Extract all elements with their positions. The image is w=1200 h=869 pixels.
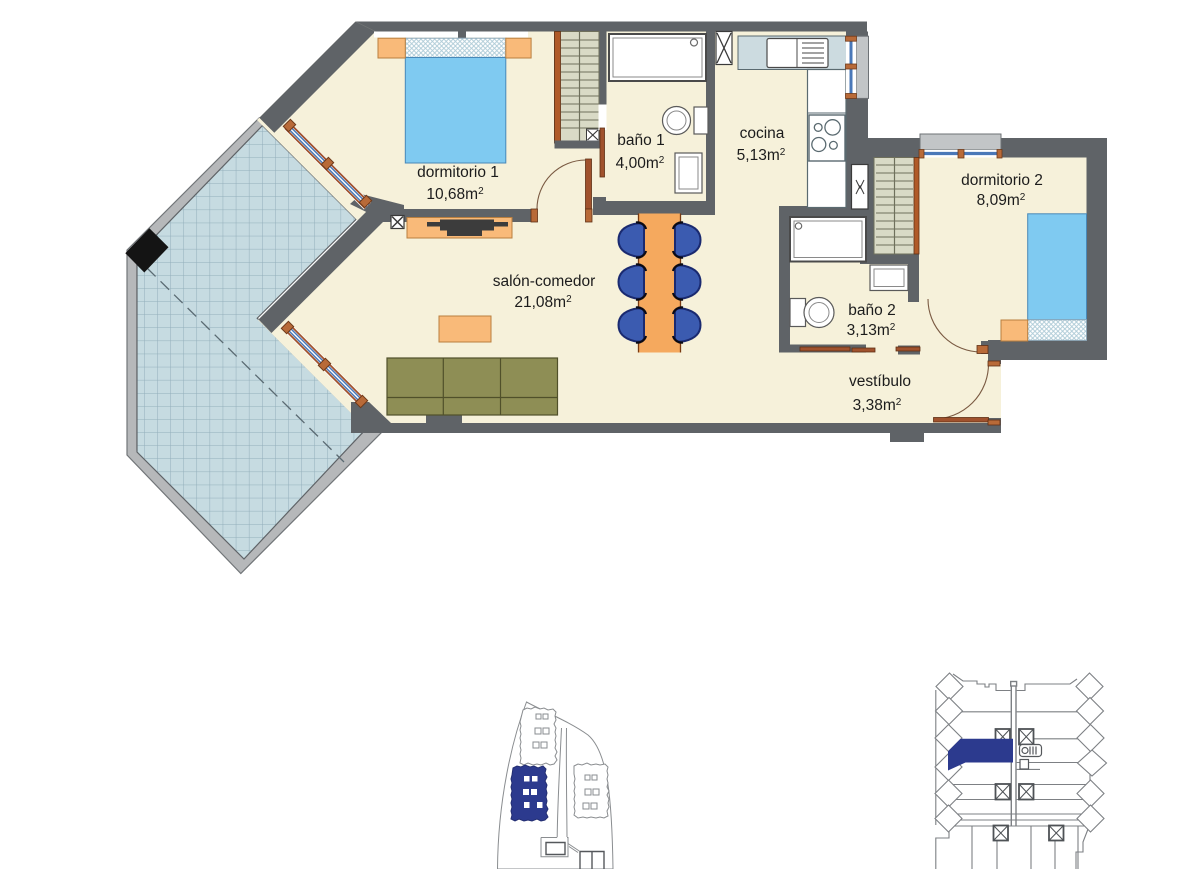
svg-text:5,13m2: 5,13m2 (737, 147, 786, 164)
svg-text:dormitorio 1: dormitorio 1 (417, 164, 499, 181)
svg-text:4,00m2: 4,00m2 (616, 155, 665, 172)
svg-text:cocina: cocina (740, 125, 785, 142)
svg-text:baño 1: baño 1 (617, 132, 664, 149)
svg-text:8,09m2: 8,09m2 (977, 192, 1026, 209)
svg-text:vestíbulo: vestíbulo (849, 373, 911, 390)
svg-text:10,68m2: 10,68m2 (426, 186, 484, 203)
svg-text:21,08m2: 21,08m2 (514, 294, 572, 311)
svg-text:salón-comedor: salón-comedor (493, 273, 596, 290)
svg-text:baño 2: baño 2 (848, 302, 895, 319)
svg-text:dormitorio 2: dormitorio 2 (961, 172, 1043, 189)
svg-text:3,38m2: 3,38m2 (853, 397, 902, 414)
svg-text:3,13m2: 3,13m2 (847, 322, 896, 339)
